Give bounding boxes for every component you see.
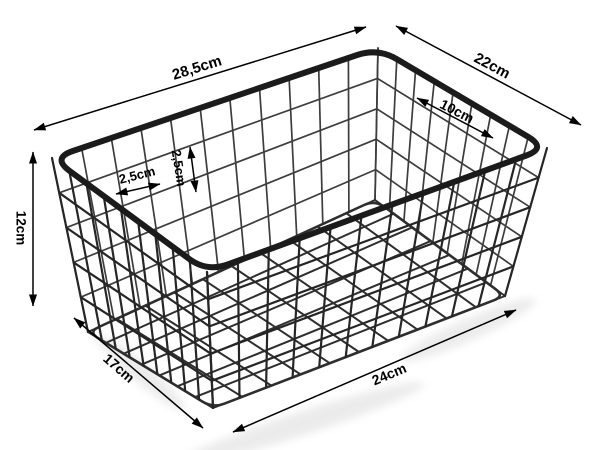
- basket-diagram: 28,5cm22cm10cm2,5cm2,5cm12cm17cm24cm: [0, 0, 600, 450]
- dimension-label-height: 12cm: [14, 211, 29, 246]
- basket-wire: [348, 58, 349, 212]
- product-dimension-image: 28,5cm22cm10cm2,5cm2,5cm12cm17cm24cm: [0, 0, 600, 450]
